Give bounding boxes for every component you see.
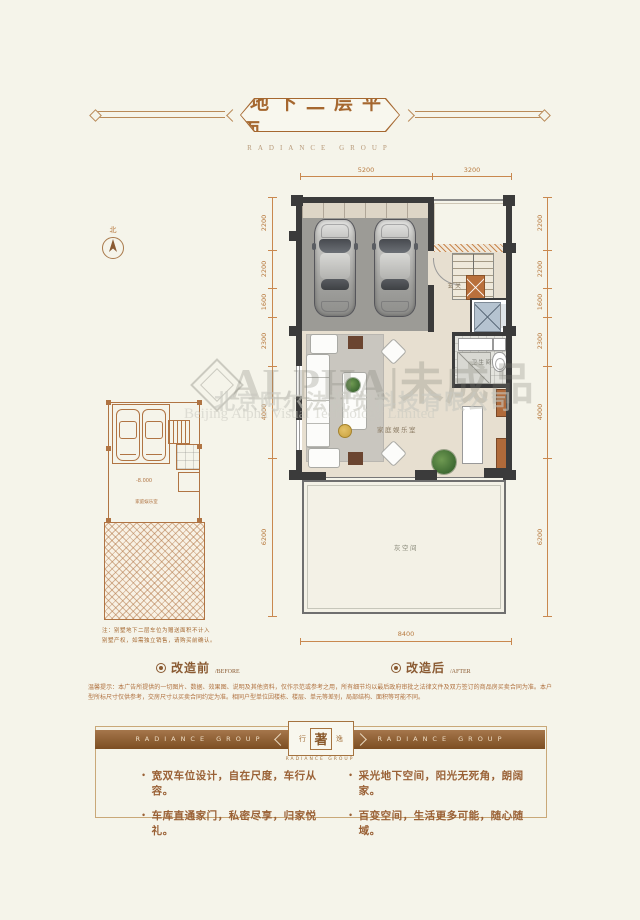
band-brand-right: RADIANCE GROUP	[352, 730, 532, 749]
garage-marble-strip	[302, 203, 428, 218]
wall-left-lower-b	[296, 396, 302, 420]
sp-pillar	[106, 400, 111, 405]
pillar	[289, 326, 302, 336]
wall-stub-3	[484, 468, 506, 478]
legend-after: 改造后 /AFTER	[391, 659, 471, 676]
car-hood	[321, 224, 349, 238]
bathroom-wall-bottom	[452, 384, 508, 388]
sp-wall-top	[108, 402, 200, 403]
bullet-dot-icon: •	[142, 808, 146, 838]
family-room-label: 家庭娱乐室	[352, 424, 442, 434]
bullet-dot-icon: •	[349, 808, 353, 838]
selling-point-text: 采光地下空间，阳光无死角，朗阔家。	[359, 768, 538, 798]
car-hood	[381, 224, 409, 238]
entry-label: 玄关	[440, 281, 470, 290]
wall-left-upper	[296, 203, 302, 332]
shower	[457, 352, 491, 384]
pillar	[289, 231, 302, 241]
selling-point: •百变空间，生活更多可能，随心随域。	[349, 808, 538, 838]
armchair-bottom	[308, 448, 340, 468]
page: { "header": { "title": "地下二层平面", "subtit…	[0, 0, 640, 920]
gray-space: 灰空间	[302, 480, 506, 614]
elevator-cab	[474, 302, 501, 332]
side-table-top	[348, 336, 363, 349]
selling-point-text: 车库直通家门，私密尽享，归家悦礼。	[152, 808, 331, 838]
selling-point: •宽双车位设计，自在尺度，车行从容。	[142, 768, 331, 798]
bathroom-label: 卫生间	[458, 358, 506, 366]
car-rear-window	[321, 279, 349, 290]
sp-pillar	[197, 400, 202, 405]
before-marker-icon	[156, 663, 166, 673]
sp-car-outline-2	[142, 409, 166, 461]
band-brand-left: RADIANCE GROUP	[110, 730, 290, 749]
car-rear-window	[381, 279, 409, 290]
sp-elevation: -8.000	[136, 478, 152, 484]
void-area	[434, 203, 508, 246]
car-windshield	[319, 239, 351, 253]
car-trunk	[321, 301, 349, 312]
bullet-dot-icon: •	[349, 768, 353, 798]
sofa-long	[306, 354, 330, 448]
bathroom-wall-top	[452, 332, 508, 336]
car-roof	[320, 253, 350, 279]
selling-point-text: 百变空间，生活更多可能，随心随域。	[359, 808, 538, 838]
car-2	[374, 219, 416, 317]
bathroom-wall-left	[452, 336, 455, 386]
note-line-1: 注：别墅地下二层车位为赠送面积不计入	[102, 627, 262, 637]
wall-top-garage	[296, 197, 434, 203]
table-plant	[346, 378, 360, 392]
wall-stub-2	[415, 470, 437, 480]
selling-points: •宽双车位设计，自在尺度，车行从容。 •采光地下空间，阳光无死角，朗阔家。 •车…	[142, 768, 538, 838]
stair-hatch-strip	[434, 244, 506, 252]
wall-garage-divider-a	[428, 203, 434, 251]
sp-garage	[112, 404, 170, 464]
medallion-center-char: 著	[310, 728, 332, 750]
car-1	[314, 219, 356, 317]
wall-top-right-thin	[434, 199, 506, 201]
sp-room-label: 家庭娱乐室	[135, 498, 158, 504]
gold-dish	[338, 424, 352, 438]
wall-garage-divider-b	[428, 285, 434, 332]
legend-before: 改造前 /BEFORE	[156, 659, 240, 676]
selling-point: •车库直通家门，私密尽享，归家悦礼。	[142, 808, 331, 838]
footer-medallion: 行 著 逸	[288, 721, 354, 756]
medallion-caption: RADIANCE GROUP	[250, 757, 390, 762]
car-trunk	[381, 301, 409, 312]
wall-bottom-thin	[302, 477, 506, 478]
window-left-2	[296, 420, 302, 450]
sp-pillar	[106, 446, 111, 451]
medallion-left-char: 行	[299, 734, 306, 744]
bullet-dot-icon: •	[142, 768, 146, 798]
gray-space-label: 灰空间	[376, 542, 436, 552]
wall-left-lower-a	[296, 332, 302, 366]
car-windshield	[379, 239, 411, 253]
sp-wall-left	[108, 402, 109, 522]
before-label-en: /BEFORE	[215, 669, 240, 676]
before-label: 改造前	[171, 659, 210, 676]
window-left-1	[296, 366, 302, 396]
disclaimer-text: 温馨提示：本广告所提供的一切图片、数据、效果图、说明及其他资料，仅作示范或参考之…	[88, 684, 552, 703]
after-label: 改造后	[406, 659, 445, 676]
sp-car-outline-1	[116, 409, 140, 461]
bathroom-vanity	[458, 338, 493, 351]
armchair-top	[310, 334, 338, 354]
bathroom-cabinet	[493, 338, 506, 351]
after-label-en: /AFTER	[450, 669, 471, 676]
car-roof	[380, 253, 410, 279]
sp-room-2	[178, 472, 200, 492]
pillar	[503, 326, 516, 336]
plan-note: 注：别墅地下二层车位为赠送面积不计入 别墅产权，如需独立销售，请购买前确认。	[102, 627, 262, 647]
selling-point-text: 宽双车位设计，自在尺度，车行从容。	[152, 768, 331, 798]
medallion-right-char: 逸	[336, 734, 343, 744]
small-floor-plan: -8.000 家庭娱乐室	[104, 394, 204, 620]
pillar	[503, 243, 516, 253]
sp-pillar	[197, 444, 202, 449]
selling-point: •采光地下空间，阳光无死角，朗阔家。	[349, 768, 538, 798]
after-marker-icon	[391, 663, 401, 673]
sp-terrace-hatch	[104, 522, 205, 620]
side-table-bottom	[348, 452, 363, 465]
sp-stairs	[168, 420, 190, 444]
bar-counter	[462, 406, 483, 464]
note-line-2: 别墅产权，如需独立销售，请购买前确认。	[102, 637, 262, 647]
wall-stub-1	[300, 472, 326, 480]
